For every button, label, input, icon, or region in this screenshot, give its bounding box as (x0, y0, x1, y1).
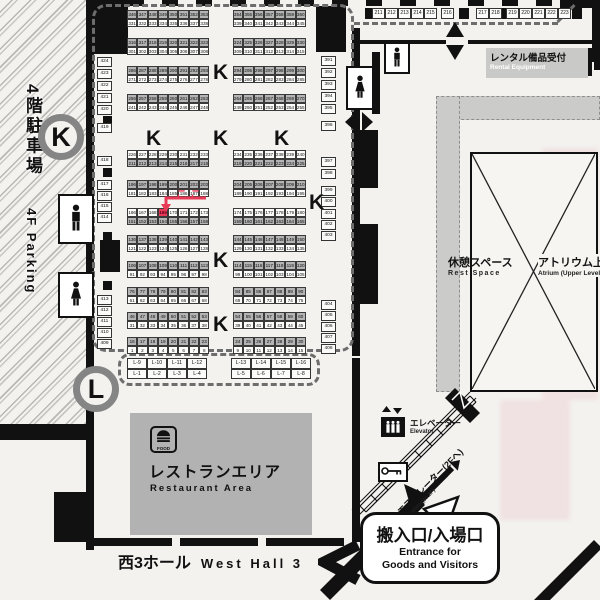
wall-segment (0, 424, 86, 440)
booth-cell: 259 (158, 94, 168, 103)
l-booth-cell: L-12 (187, 358, 207, 369)
booth-cell: 100 (243, 270, 254, 279)
booth-cell: 123 (148, 244, 158, 253)
door-updown-icon (444, 22, 466, 62)
key-icon (380, 464, 404, 478)
booth-cell: 271 (127, 75, 137, 84)
wall-booth-strip: 219220221222223 (506, 8, 571, 19)
booth-cell: 55 (243, 312, 254, 321)
wall-booth-cell: 220 (519, 8, 532, 19)
booth-cell: 210 (296, 180, 307, 189)
booth-row: L-13L-14L-15L-16 (231, 358, 311, 369)
booth-row: 234235236237238239240 (233, 150, 307, 159)
restroom-female-right (346, 66, 374, 110)
booth-row: L-1L-2L-3L-4 (127, 369, 207, 380)
booth-cell: 111 (178, 261, 188, 270)
booth-cell: 320 (168, 38, 178, 47)
booth-cell: 298 (275, 66, 286, 75)
wall-booth-cell: 404 (321, 300, 336, 310)
booth-cell: 322 (189, 38, 199, 47)
l-booth-cell: L-15 (271, 358, 291, 369)
booth-cell: 220 (243, 159, 254, 168)
booth-cell: 338 (199, 19, 209, 28)
booth-cell: 109 (158, 261, 168, 270)
booth-cell: 329 (285, 38, 296, 47)
booth-cell: 276 (178, 75, 188, 84)
l-booth-cell: L-7 (271, 369, 291, 380)
booth-cell: 25 (243, 337, 254, 346)
atrium-label-jp: アトリウム上部 (538, 254, 600, 270)
wall-segment (352, 224, 378, 304)
booth-cell: 77 (137, 287, 147, 296)
rental-label-jp: レンタル備品受付 (490, 50, 584, 64)
wall-booth-strip: 211212213214215 (372, 8, 437, 19)
booth-cell: 286 (127, 66, 137, 75)
booth-cell: 29 (285, 337, 296, 346)
booth-cell: 235 (243, 150, 254, 159)
booth-cell: 282 (264, 75, 275, 84)
parking-label-en: 4F Parking (24, 208, 39, 294)
booth-cell: 344 (285, 19, 296, 28)
booth-cell: 267 (264, 94, 275, 103)
l-booth-cell: L-4 (187, 369, 207, 380)
booth-cell: 356 (254, 10, 265, 19)
booth-cell: 9 (233, 346, 244, 355)
booth-cell: 249 (233, 103, 244, 112)
booth-cell: 216 (178, 159, 188, 168)
booth-cell: 75 (296, 296, 307, 305)
booth-table: 161718192021222312345678 (127, 337, 209, 354)
booth-row: 241242243244245246247248 (127, 103, 209, 112)
wall-segment (468, 40, 600, 44)
booth-cell: 284 (285, 75, 296, 84)
booth-cell: 81 (178, 287, 188, 296)
booth-cell: 16 (127, 337, 137, 346)
booth-cell: 133 (275, 244, 286, 253)
booth-row: 54555657585960 (233, 312, 307, 321)
booth-cell: 293 (199, 66, 209, 75)
restroom-female-left (58, 272, 94, 318)
booth-cell: 17 (137, 337, 147, 346)
booth-cell: 304 (158, 47, 168, 56)
booth-row: 324325326327328329330 (233, 38, 307, 47)
door-swing-icon (344, 110, 374, 134)
booth-cell: 134 (285, 244, 296, 253)
booth-cell: 291 (178, 66, 188, 75)
booth-row: 9101112131415 (233, 346, 307, 355)
wall-segment (459, 8, 469, 19)
wall-segment (352, 130, 378, 188)
booth-cell: 353 (199, 10, 209, 19)
booth-cell: 32 (137, 321, 147, 330)
booth-cell: 130 (243, 244, 254, 253)
booth-row: 121122123124125126127128 (127, 244, 209, 253)
wall-booth-cell: 419 (97, 123, 112, 133)
booth-cell: 209 (285, 180, 296, 189)
l-booth-cell: L-3 (167, 369, 187, 380)
booth-cell: 76 (127, 287, 137, 296)
booth-cell: 307 (189, 47, 199, 56)
l-booth-table: L-9L-10L-11L-12L-1L-2L-3L-4 (127, 358, 207, 379)
wall-booth-cell: 212 (385, 8, 398, 19)
booth-cell: 311 (254, 47, 265, 56)
booth-cell: 97 (189, 270, 199, 279)
booth-cell: 84 (233, 287, 244, 296)
booth-cell: 72 (264, 296, 275, 305)
booth-cell: 40 (243, 321, 254, 330)
booth-row: 12345678 (127, 346, 209, 355)
booth-table: 1061071081091101111121139192939495969798 (127, 261, 209, 278)
l-booth-cell: L-11 (167, 358, 187, 369)
booth-row: 69707172737475 (233, 296, 307, 305)
booth-cell: 53 (199, 312, 209, 321)
booth-table: 3163173183193203213223233013023033043053… (127, 38, 209, 55)
booth-row: 301302303304305306307308 (127, 47, 209, 56)
booth-cell: 38 (199, 321, 209, 330)
booth-cell: 297 (264, 66, 275, 75)
k-block-letter: K (213, 250, 228, 271)
booth-table: 5455565758596039404142434445 (233, 312, 307, 329)
booth-cell: 126 (178, 244, 188, 253)
wall-booth-cell: 410 (97, 328, 112, 338)
booth-cell: 48 (148, 312, 158, 321)
booth-row: 106107108109110111112113 (127, 261, 209, 270)
k-block-letter: K (274, 128, 289, 149)
booth-cell: 335 (168, 19, 178, 28)
booth-cell: 135 (296, 244, 307, 253)
rest-space-label-jp: 休憩スペース (448, 254, 513, 270)
booth-cell: 143 (199, 235, 209, 244)
booth-cell: 295 (243, 66, 254, 75)
booth-cell: 120 (296, 261, 307, 270)
wall-booth-cell: 214 (411, 8, 424, 19)
k-block-letter: K (213, 62, 228, 83)
booth-cell: 41 (254, 321, 265, 330)
booth-row: 286287288289290291292293 (127, 66, 209, 75)
booth-cell: 204 (233, 180, 244, 189)
booth-cell: 332 (137, 19, 147, 28)
booth-row: 331332333334335336337338 (127, 19, 209, 28)
booth-cell: 360 (296, 10, 307, 19)
booth-cell: 6 (178, 346, 188, 355)
booth-cell: 163 (275, 217, 286, 226)
booth-cell: 49 (158, 312, 168, 321)
booth-cell: 27 (264, 337, 275, 346)
booth-cell: 7 (189, 346, 199, 355)
booth-cell: 102 (264, 270, 275, 279)
wall-booth-cell: 405 (321, 311, 336, 321)
booth-cell: 305 (168, 47, 178, 56)
booth-row: 211212213214215216217218 (127, 159, 209, 168)
booth-cell: 80 (168, 287, 178, 296)
hall-label-jp: 西3ホール (118, 549, 191, 573)
booth-cell: 34 (158, 321, 168, 330)
booth-cell: 13 (275, 346, 286, 355)
here-marker-label: ここ (176, 186, 204, 202)
wall-booth-cell: 415 (97, 202, 112, 212)
booth-cell: 272 (137, 75, 147, 84)
booth-cell: 96 (178, 270, 188, 279)
booth-cell: 355 (243, 10, 254, 19)
booth-cell: 178 (275, 208, 286, 217)
booth-cell: 161 (254, 217, 265, 226)
restroom-male-left (58, 194, 94, 244)
wall-booth-cell: 221 (532, 8, 545, 19)
booth-cell: 51 (178, 312, 188, 321)
elevator-label-jp: エレベーター (410, 417, 461, 429)
booth-cell: 301 (127, 47, 137, 56)
booth-table: 2942952962972982993002792802812822832842… (233, 66, 307, 83)
entrance-label-en2: Goods and Visitors (363, 559, 497, 572)
booth-cell: 147 (264, 235, 275, 244)
booth-cell: 90 (296, 287, 307, 296)
wall-booth-cell: 213 (398, 8, 411, 19)
booth-cell: 350 (168, 10, 178, 19)
booth-cell: 226 (127, 150, 137, 159)
booth-cell: 106 (127, 261, 137, 270)
booth-row: 264265266267268269270 (233, 94, 307, 103)
booth-cell: 69 (233, 296, 244, 305)
booth-cell: 26 (254, 337, 265, 346)
booth-cell: 263 (199, 94, 209, 103)
l-booth-cell: L-14 (251, 358, 271, 369)
wall-booth-cell: 407 (321, 333, 336, 343)
booth-cell: 318 (148, 38, 158, 47)
booth-cell: 288 (148, 66, 158, 75)
booth-table: 1441451461471481491501291301311321331341… (233, 235, 307, 252)
booth-cell: 342 (264, 19, 275, 28)
booth-cell: 313 (275, 47, 286, 56)
booth-cell: 20 (168, 337, 178, 346)
l-booth-cell: L-16 (291, 358, 311, 369)
booth-cell: 260 (168, 94, 178, 103)
booth-cell: 155 (168, 217, 178, 226)
booth-table: 3463473483493503513523533313323333343353… (127, 10, 209, 27)
booth-cell: 21 (178, 337, 188, 346)
k-block-letter: K (146, 128, 161, 149)
booth-cell: 239 (285, 150, 296, 159)
booth-cell: 309 (233, 47, 244, 56)
booth-cell: 194 (285, 189, 296, 198)
booth-cell: 217 (189, 159, 199, 168)
wall-segment (588, 48, 592, 76)
booth-cell: 162 (264, 217, 275, 226)
hall-label: 西3ホール West Hall 3 (118, 549, 303, 573)
booth-cell: 300 (296, 66, 307, 75)
booth-cell: 39 (233, 321, 244, 330)
booth-cell: 5 (168, 346, 178, 355)
booth-cell: 270 (296, 94, 307, 103)
booth-cell: 3 (148, 346, 158, 355)
booth-cell: 324 (233, 38, 244, 47)
booth-cell: 149 (285, 235, 296, 244)
booth-cell: 50 (168, 312, 178, 321)
entrance-label-jp: 搬入口/入場口 (363, 521, 497, 546)
booth-table: 1741751761771781791801591601611621631641… (233, 208, 307, 225)
booth-cell: 4 (158, 346, 168, 355)
booth-cell: 290 (168, 66, 178, 75)
k-block-letter: K (213, 128, 228, 149)
wall-booth-cell: 413 (97, 295, 112, 305)
booth-cell: 253 (275, 103, 286, 112)
wall-booth-cell: 417 (97, 180, 112, 190)
booth-table: 242526272829309101112131415 (233, 337, 307, 354)
booth-cell: 244 (158, 103, 168, 112)
booth-cell: 138 (148, 235, 158, 244)
booth-cell: 14 (285, 346, 296, 355)
booth-cell: 233 (199, 150, 209, 159)
booth-table: 8485868788899069707172737475 (233, 287, 307, 304)
booth-cell: 145 (243, 235, 254, 244)
booth-row: 354355356357358359360 (233, 10, 307, 19)
booth-cell: 264 (233, 94, 244, 103)
booth-cell: 114 (233, 261, 244, 270)
l-booth-cell: L-5 (231, 369, 251, 380)
booth-table: 2562572582592602612622632412422432442452… (127, 94, 209, 111)
wall-booth-cell: 392 (321, 68, 336, 78)
booth-cell: 278 (199, 75, 209, 84)
booth-cell: 24 (233, 337, 244, 346)
booth-cell: 128 (199, 244, 209, 253)
wall-booth-cell: 420 (97, 105, 112, 115)
booth-cell: 223 (275, 159, 286, 168)
booth-cell: 275 (168, 75, 178, 84)
booth-cell: 257 (137, 94, 147, 103)
wall-booth-cell: 423 (97, 69, 112, 79)
booth-cell: 321 (178, 38, 188, 47)
booth-cell: 218 (199, 159, 209, 168)
booth-row: 151152153154155156157158 (127, 217, 209, 226)
booth-cell: 192 (264, 189, 275, 198)
booth-cell: 45 (296, 321, 307, 330)
booth-cell: 66 (178, 296, 188, 305)
booth-cell: 115 (243, 261, 254, 270)
booth-cell: 306 (178, 47, 188, 56)
booth-cell: 258 (148, 94, 158, 103)
booth-cell: 144 (233, 235, 244, 244)
booth-cell: 56 (254, 312, 265, 321)
booth-row: 294295296297298299300 (233, 66, 307, 75)
booth-cell: 195 (296, 189, 307, 198)
k-block-letter: K (309, 192, 324, 213)
booth-cell: 231 (178, 150, 188, 159)
booth-cell: 359 (285, 10, 296, 19)
booth-table: 1141151161171181191209910010110210310410… (233, 261, 307, 278)
booth-cell: 105 (296, 270, 307, 279)
booth-cell: 208 (275, 180, 286, 189)
wall-segment (180, 538, 258, 546)
l-booth-cell: L-2 (147, 369, 167, 380)
booth-cell: 61 (127, 296, 137, 305)
booth-cell: 333 (148, 19, 158, 28)
booth-cell: 65 (168, 296, 178, 305)
booth-cell: 28 (275, 337, 286, 346)
booth-cell: 182 (137, 189, 147, 198)
elevator-label: エレベーター Elevator (410, 417, 461, 435)
booth-cell: 221 (254, 159, 265, 168)
booth-cell: 139 (158, 235, 168, 244)
booth-table: 2862872882892902912922932712722732742752… (127, 66, 209, 83)
wall-booth-cell: 391 (321, 56, 336, 66)
wall-booth-strip: 216 (441, 8, 454, 19)
wall-booth-cell: 402 (321, 220, 336, 230)
rest-space-label-en: Rest Space (448, 270, 513, 277)
booth-cell: 234 (233, 150, 244, 159)
booth-cell: 334 (158, 19, 168, 28)
booth-cell: 357 (264, 10, 275, 19)
food-icon: FOOD (150, 426, 177, 453)
booth-cell: 156 (178, 217, 188, 226)
booth-cell: 146 (254, 235, 265, 244)
booth-cell: 197 (137, 180, 147, 189)
booth-cell: 54 (233, 312, 244, 321)
booth-cell: 191 (254, 189, 265, 198)
zone-k-letter: K (51, 122, 71, 153)
booth-cell: 94 (158, 270, 168, 279)
booth-cell: 116 (254, 261, 265, 270)
booth-cell: 326 (254, 38, 265, 47)
booth-cell: 57 (264, 312, 275, 321)
booth-cell: 310 (243, 47, 254, 56)
booth-cell: 265 (243, 94, 254, 103)
booth-cell: 341 (254, 19, 265, 28)
booth-row: 129130131132133134135 (233, 244, 307, 253)
wall-booth-cell: 219 (506, 8, 519, 19)
booth-row: 7677787980818283 (127, 287, 209, 296)
booth-cell: 8 (199, 346, 209, 355)
booth-cell: 88 (275, 287, 286, 296)
booth-cell: 70 (243, 296, 254, 305)
booth-cell: 176 (254, 208, 265, 217)
booth-cell: 86 (254, 287, 265, 296)
booth-cell: 103 (275, 270, 286, 279)
booth-table: 3243253263273283293303093103113123133143… (233, 38, 307, 55)
booth-cell: 268 (275, 94, 286, 103)
booth-cell: 349 (158, 10, 168, 19)
booth-cell: 107 (137, 261, 147, 270)
booth-cell: 180 (296, 208, 307, 217)
booth-cell: 328 (275, 38, 286, 47)
booth-cell: 60 (296, 312, 307, 321)
booth-cell: 242 (137, 103, 147, 112)
booth-cell: 159 (233, 217, 244, 226)
booth-row: 339340341342343344345 (233, 19, 307, 28)
booth-cell: 214 (158, 159, 168, 168)
booth-cell: 325 (243, 38, 254, 47)
wall-segment (572, 8, 582, 19)
booth-cell: 22 (189, 337, 199, 346)
booth-cell: 121 (127, 244, 137, 253)
booth-row: 256257258259260261262263 (127, 94, 209, 103)
booth-cell: 23 (199, 337, 209, 346)
booth-cell: 181 (127, 189, 137, 198)
booth-cell: 131 (254, 244, 265, 253)
booth-cell: 47 (137, 312, 147, 321)
booth-cell: 2 (137, 346, 147, 355)
booth-cell: 285 (296, 75, 307, 84)
female-restroom-icon (68, 281, 84, 309)
booth-cell: 164 (285, 217, 296, 226)
booth-cell: 64 (158, 296, 168, 305)
wall-booth-cell: 424 (97, 57, 112, 67)
booth-cell: 78 (148, 287, 158, 296)
booth-cell: 228 (148, 150, 158, 159)
booth-cell: 224 (285, 159, 296, 168)
booth-cell: 248 (199, 103, 209, 112)
booth-cell: 252 (264, 103, 275, 112)
booth-cell: 262 (189, 94, 199, 103)
booth-cell: 15 (296, 346, 307, 355)
